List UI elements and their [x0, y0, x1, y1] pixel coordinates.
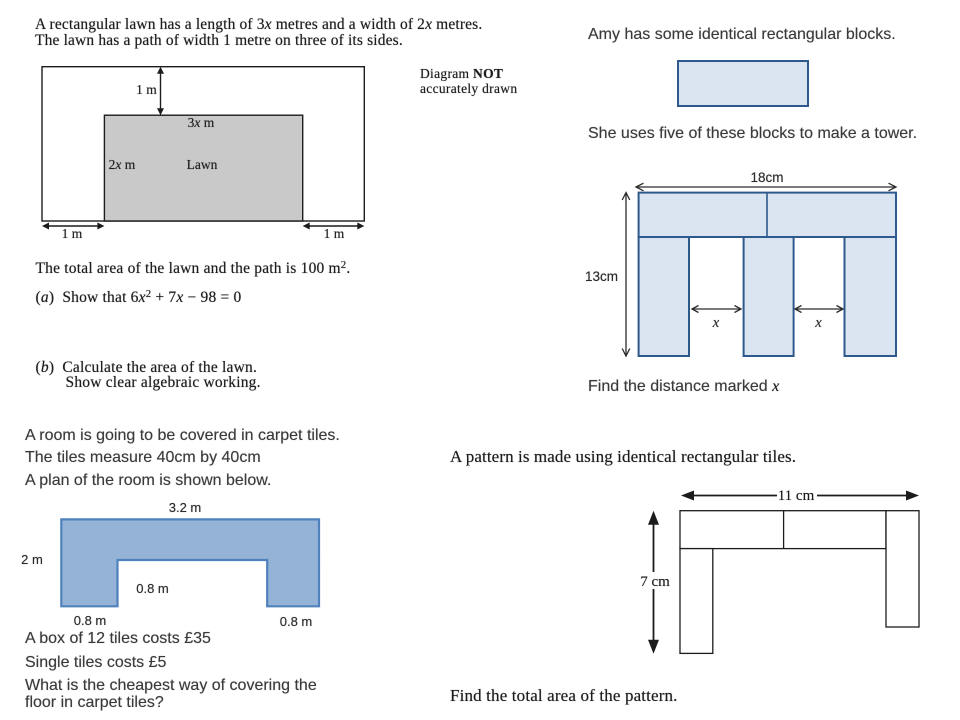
- svg-text:1 m: 1 m: [62, 226, 83, 241]
- svg-text:0.8 m: 0.8 m: [136, 581, 169, 596]
- svg-text:1 m: 1 m: [136, 82, 157, 97]
- svg-text:3.2 m: 3.2 m: [169, 500, 202, 515]
- svg-text:2x m: 2x m: [109, 157, 136, 172]
- svg-text:x: x: [712, 315, 720, 331]
- svg-text:Lawn: Lawn: [187, 157, 218, 172]
- svg-text:0.8 m: 0.8 m: [74, 613, 107, 628]
- svg-text:0.8 m: 0.8 m: [280, 614, 313, 629]
- svg-text:3x m: 3x m: [188, 115, 215, 130]
- svg-text:13cm: 13cm: [585, 269, 618, 284]
- svg-text:2 m: 2 m: [21, 552, 43, 567]
- svg-text:x: x: [814, 315, 822, 331]
- svg-text:11 cm: 11 cm: [778, 488, 815, 504]
- svg-text:18cm: 18cm: [750, 170, 783, 185]
- svg-text:7 cm: 7 cm: [640, 574, 670, 590]
- svg-text:1 m: 1 m: [324, 226, 345, 241]
